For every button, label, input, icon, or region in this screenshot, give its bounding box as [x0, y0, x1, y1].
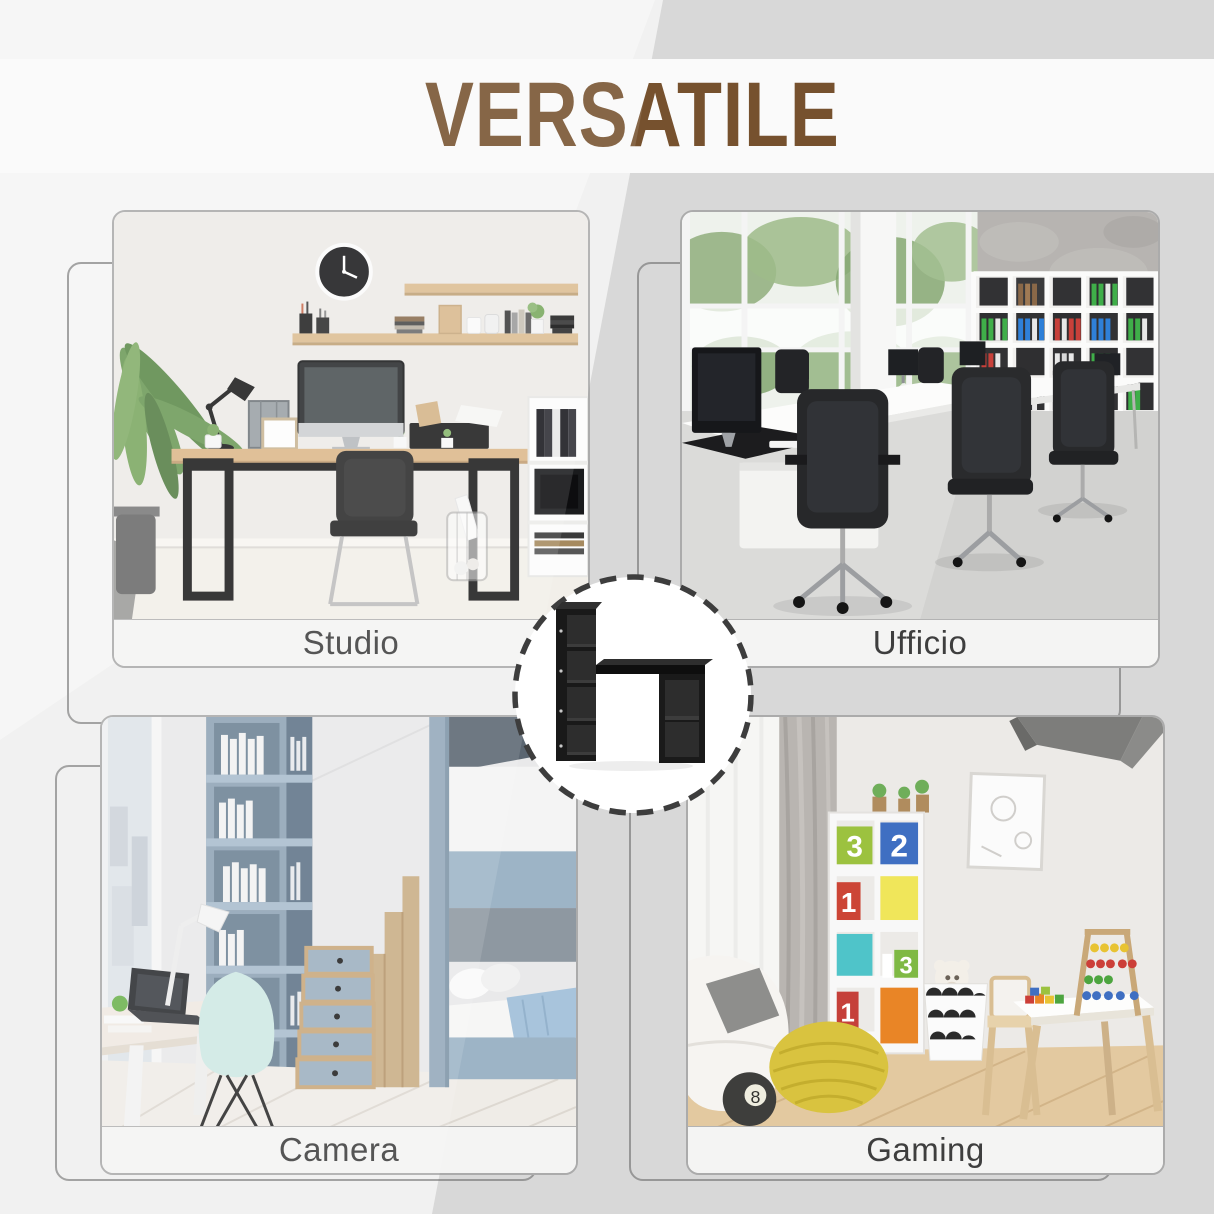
camera-label: Camera — [102, 1126, 576, 1173]
eight-ball: 8 — [723, 1072, 777, 1126]
box-number-2: 2 — [890, 827, 908, 863]
yellow-pouf — [769, 1022, 888, 1114]
ufficio-label-text: Ufficio — [873, 624, 968, 662]
dashed-circle-border — [515, 577, 751, 813]
gaming-label: Gaming — [688, 1126, 1163, 1173]
page-title-text: VERSATILE — [425, 59, 840, 171]
studio-label-text: Studio — [303, 624, 400, 662]
box-number-3b: 3 — [900, 953, 913, 980]
box-number-1: 1 — [841, 887, 856, 918]
camera-card: Camera — [100, 715, 578, 1175]
product-badge — [509, 571, 757, 819]
page-title: VERSATILE — [50, 59, 1214, 173]
gaming-card: 3 2 1 3 1 — [686, 715, 1165, 1175]
ufficio-photo — [682, 212, 1158, 620]
gaming-photo: 3 2 1 3 1 — [688, 717, 1163, 1127]
wall-clock — [317, 245, 371, 299]
wall-picture-frame — [968, 773, 1045, 869]
computer-monitor — [298, 361, 403, 450]
camera-photo — [102, 717, 576, 1127]
studio-photo — [114, 212, 588, 620]
camera-label-text: Camera — [279, 1131, 399, 1169]
box-number-3: 3 — [846, 830, 863, 863]
cube-shelf: 3 2 1 3 1 — [829, 780, 929, 1054]
eight-ball-number: 8 — [750, 1087, 760, 1107]
storage-shelf — [529, 397, 588, 576]
gaming-label-text: Gaming — [866, 1131, 985, 1169]
promo-image: VERSATILE — [0, 0, 1214, 1214]
